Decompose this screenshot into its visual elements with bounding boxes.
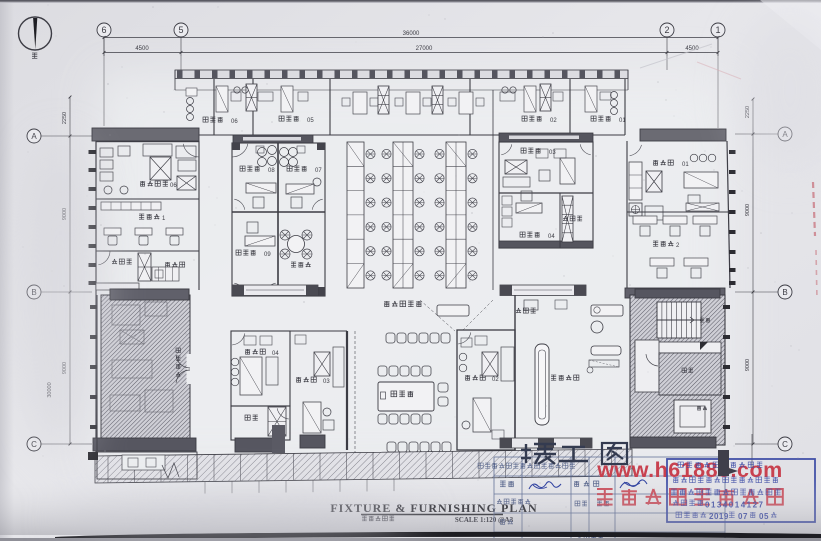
svg-text:C: C (782, 440, 788, 449)
svg-text:02: 02 (550, 118, 557, 124)
svg-text:04: 04 (548, 234, 555, 240)
svg-text:2250: 2250 (62, 112, 68, 124)
svg-text:9000: 9000 (745, 204, 751, 216)
svg-text:4500: 4500 (135, 46, 149, 52)
svg-text:5: 5 (178, 25, 183, 35)
svg-text:C: C (31, 440, 37, 449)
svg-text:2: 2 (664, 25, 669, 35)
svg-text:09: 09 (264, 252, 271, 258)
svg-text:02: 02 (492, 377, 499, 383)
svg-text:08: 08 (268, 168, 275, 174)
svg-text:01: 01 (619, 118, 626, 124)
svg-text:03: 03 (549, 150, 556, 156)
svg-text:06: 06 (231, 119, 238, 125)
svg-text:01: 01 (682, 162, 689, 168)
svg-text:03: 03 (323, 379, 330, 385)
svg-text:1: 1 (715, 25, 720, 35)
svg-text:36000: 36000 (403, 31, 420, 37)
svg-text:06: 06 (170, 183, 177, 189)
svg-text:27000: 27000 (416, 46, 433, 52)
svg-text:04: 04 (272, 351, 279, 357)
svg-text:A: A (31, 132, 37, 141)
svg-text:05: 05 (307, 118, 314, 124)
svg-text:9000: 9000 (745, 359, 751, 371)
svg-text:B: B (782, 288, 787, 297)
svg-text:6: 6 (101, 25, 106, 35)
svg-text:07: 07 (315, 168, 322, 174)
